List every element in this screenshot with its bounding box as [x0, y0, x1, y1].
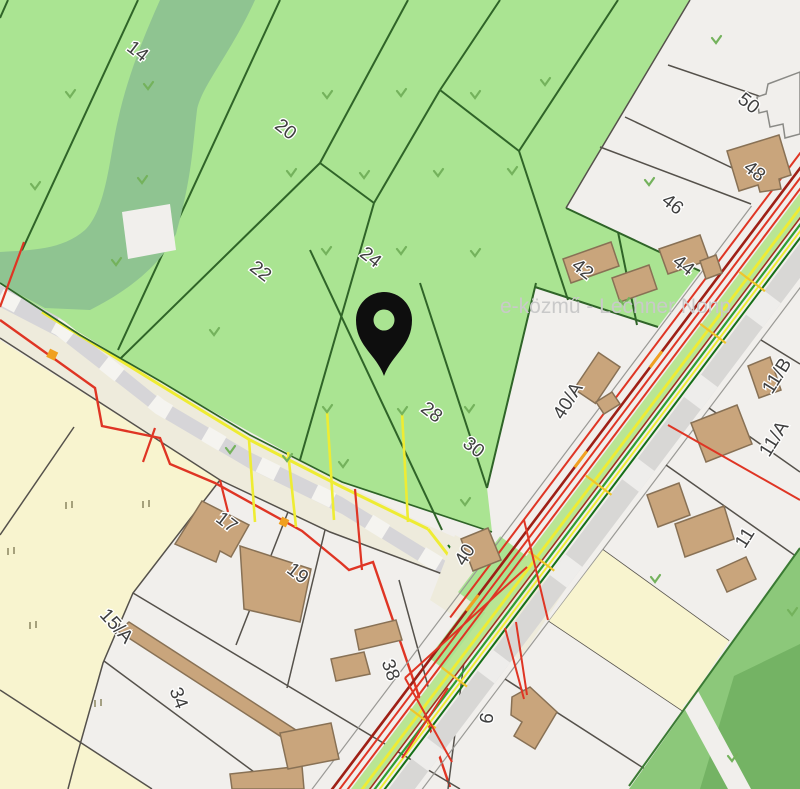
svg-text:e-közmű - Lechner Nonp: e-közmű - Lechner Nonp — [500, 295, 731, 318]
